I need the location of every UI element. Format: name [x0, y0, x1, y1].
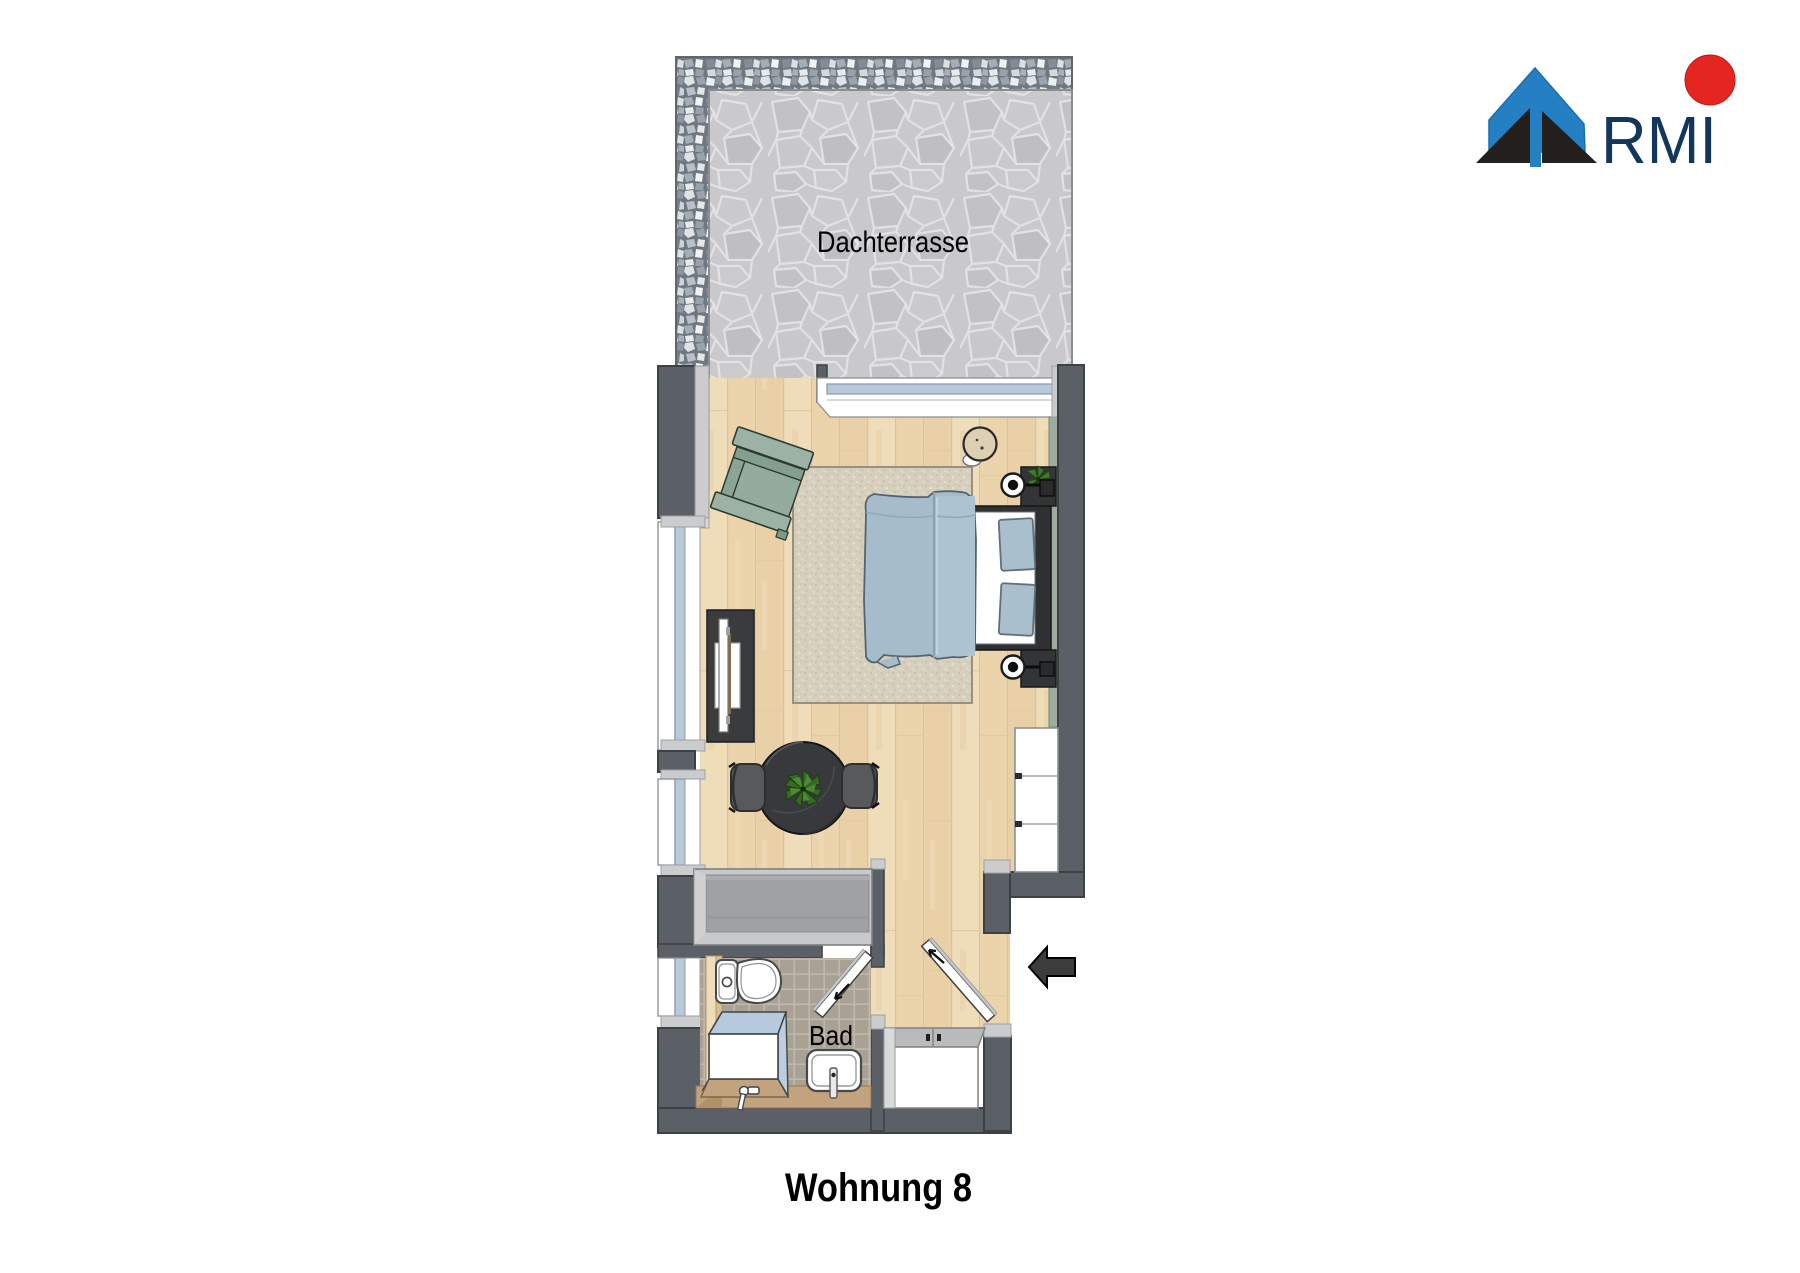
svg-text:Wohnung 8: Wohnung 8	[785, 1166, 972, 1210]
svg-text:RMI: RMI	[1601, 103, 1717, 178]
svg-text:Dachterrasse: Dachterrasse	[817, 226, 969, 259]
svg-text:Bad: Bad	[809, 1020, 853, 1051]
